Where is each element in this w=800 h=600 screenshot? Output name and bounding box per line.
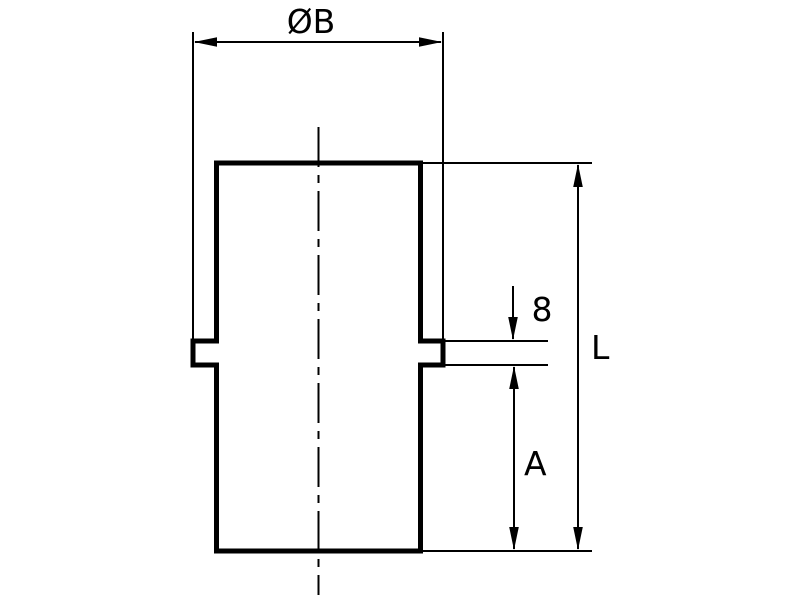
technical-drawing: ØB 8 A L bbox=[0, 0, 800, 600]
flange-thickness-label: 8 bbox=[532, 290, 553, 329]
dim-a: A bbox=[514, 367, 547, 549]
drawing-canvas: ØB 8 A L bbox=[0, 0, 800, 600]
dim-flange-thickness: 8 bbox=[445, 286, 553, 365]
diameter-label: ØB bbox=[287, 2, 336, 41]
length-label: L bbox=[591, 328, 610, 367]
a-label: A bbox=[524, 444, 547, 483]
dim-overall-length: L bbox=[423, 163, 610, 551]
